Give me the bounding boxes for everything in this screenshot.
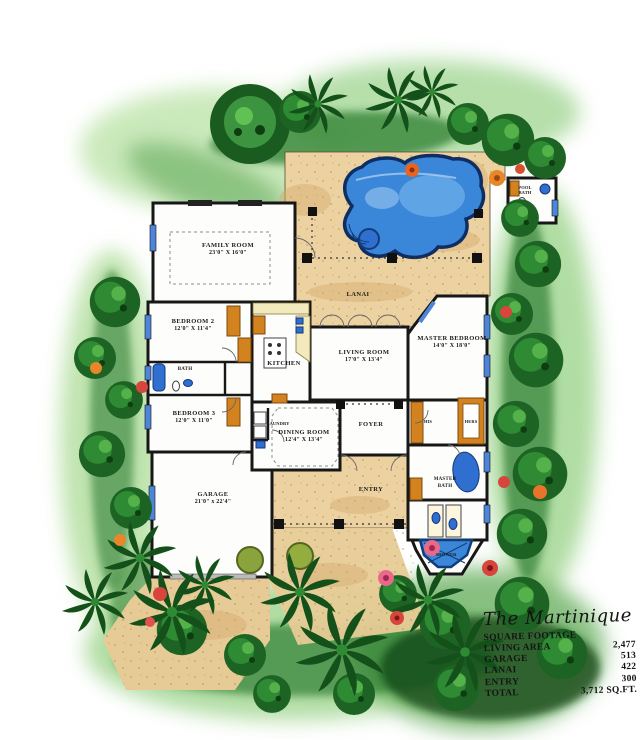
- label-dining-room: DINING ROOM12'4" X 13'4": [278, 429, 329, 445]
- label-living-room: LIVING ROOM17'0" X 13'4": [339, 349, 390, 365]
- label-his-closet: HIS: [424, 419, 432, 424]
- label-bedroom3: BEDROOM 312'0" X 11'0": [173, 410, 216, 426]
- label-kitchen: KITCHEN: [267, 360, 301, 368]
- label-lanai: LANAI: [347, 291, 370, 299]
- site-plan-rendering: FAMILY ROOM23'0" X 16'0" BEDROOM 212'0" …: [0, 0, 640, 740]
- label-master-bath: MASTERBATH: [434, 477, 457, 490]
- large-tree: [210, 84, 290, 164]
- label-bedroom2: BEDROOM 212'0" X 11'4": [172, 318, 215, 334]
- label-entry: ENTRY: [359, 486, 384, 494]
- label-foyer: FOYER: [359, 421, 384, 429]
- plan-title: The Martinique: [483, 605, 636, 630]
- square-footage-table: SQUARE FOOTAGE LIVING AREA2,477 GARAGE51…: [483, 629, 637, 700]
- label-hers-closet: HERS: [465, 419, 478, 424]
- label-shower: SHOWER: [436, 552, 457, 557]
- plan-legend: The Martinique SQUARE FOOTAGE LIVING ARE…: [483, 605, 637, 700]
- label-master-bedroom: MASTER BEDROOM14'0" X 18'0": [417, 335, 486, 351]
- label-laundry: LAUNDRY: [266, 421, 289, 426]
- label-bath: BATH: [178, 367, 193, 374]
- label-garage: GARAGE21'0" x 22'4": [195, 491, 232, 507]
- label-family-room: FAMILY ROOM23'0" X 16'0": [202, 242, 254, 258]
- label-pool-bath: POOLBATH: [518, 185, 531, 196]
